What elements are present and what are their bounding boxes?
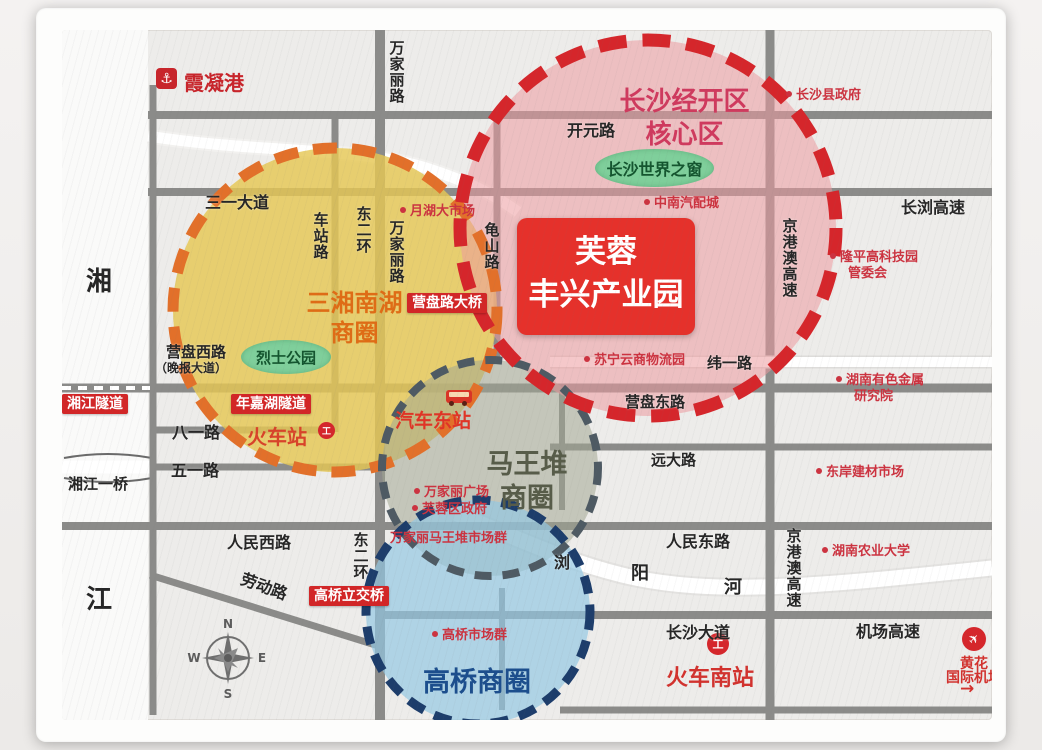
road-label: 阳 [631,564,649,584]
poi-label: 芙蓉区政府 [412,502,487,518]
zone-title-jingkai: 长沙经开区 核心区 [602,86,767,151]
site-marker-fengxing-park: 芙蓉 丰兴产业园 [517,218,695,335]
xiangjiang-river [62,30,148,720]
anchor-icon: ⚓ [156,68,177,89]
zone-title-sanxiang: 三湘南湖 商圈 [287,288,422,348]
road-label: 八一路 [172,424,220,442]
road-label: 万家丽路 [388,220,405,284]
poi-dot-icon [584,356,590,362]
park-window-of-world: 长沙世界之窗 [595,149,714,187]
poi-dot-icon [822,547,828,553]
road-label: 营盘西路 [166,344,226,361]
road-badge: 高桥立交桥 [309,586,389,606]
road-label: 五一路 [171,462,219,480]
road-badge: 年嘉湖隧道 [231,394,311,414]
poi-label: 万家丽马王堆市场群 [390,531,507,547]
road-label: 车站路 [312,212,329,260]
railway-station-label: 火车站 [247,421,307,450]
road-label: 龟山路 [483,222,500,270]
poi-dot-icon [836,376,842,382]
map-photo-frame: N S W E 长沙经开区 核心区 三湘南湖 商圈 马王堆 商圈 高桥商圈 [36,8,1006,742]
poi-label: 苏宁云商物流园 [584,353,685,369]
road-label: 机场高速 [856,623,920,641]
road-label: 万家丽路 [388,40,405,104]
xianing-port-label: 霞凝港 [184,67,244,96]
road-label: 京港澳高速 [785,528,802,608]
road-label: 开元路 [567,122,615,140]
east-bus-station-label: 汽车东站 [395,406,471,433]
railway-station-icon: 工 [318,422,335,439]
compass-e: E [258,651,266,665]
road-label: 人民西路 [227,534,291,552]
poi-label: 长沙县政府 [786,88,861,104]
road-label: 湘江一桥 [68,476,128,493]
road-label: 营盘东路 [625,394,685,411]
road-label: 京港澳高速 [781,218,798,298]
map-canvas: N S W E 长沙经开区 核心区 三湘南湖 商圈 马王堆 商圈 高桥商圈 [62,30,992,720]
airport-plane-icon: ✈ [962,627,986,651]
poi-label: 中南汽配城 [644,196,719,212]
road-label: 长沙大道 [666,624,730,642]
poi-label: 湖南有色金属研究院 [836,373,924,406]
road-label: 远大路 [651,452,696,469]
bus-icon [446,390,472,403]
poi-label: 高桥市场群 [432,628,507,644]
road-label: 长浏高速 [901,199,965,217]
poi-label: 月湖大市场 [400,204,475,220]
poi-label: 隆平高科技园管委会 [830,250,918,283]
compass-n: N [223,617,233,631]
road-label: 湘 [86,268,112,297]
zone-title-gaoqiao: 高桥商圈 [412,666,542,700]
poi-dot-icon [400,207,406,213]
road-label: 河 [724,578,742,598]
poi-dot-icon [432,631,438,637]
poi-dot-icon [786,91,792,97]
poi-label: 东岸建材市场 [816,465,904,481]
road-label: 浏 [554,554,570,572]
poi-label: 湖南农业大学 [822,544,910,560]
compass-rose: N S W E [187,617,266,701]
poi-dot-icon [830,253,836,259]
poi-dot-icon [412,505,418,511]
road-label: 人民东路 [666,533,730,551]
compass-w: W [187,651,200,665]
road-label: （晚报大道） [155,362,227,375]
poi-dot-icon [644,199,650,205]
south-railway-station-label: 火车南站 [666,660,754,692]
poi-dot-icon [816,468,822,474]
poi-label: 万家丽广场 [414,485,489,501]
compass-s: S [224,687,233,701]
road-label: 东二环 [352,532,369,580]
road-badge: 湘江隧道 [62,394,128,414]
road-label: 江 [86,586,112,615]
location-map-screenshot: N S W E 长沙经开区 核心区 三湘南湖 商圈 马王堆 商圈 高桥商圈 [0,0,1042,750]
road-label: 东二环 [355,206,372,254]
road-label: 三一大道 [205,194,269,212]
road-label: 纬一路 [707,355,752,372]
airport-direction-arrow: → [960,679,974,699]
poi-dot-icon [414,488,420,494]
road-badge: 营盘路大桥 [407,293,487,313]
park-martyrs: 烈士公园 [241,340,331,374]
